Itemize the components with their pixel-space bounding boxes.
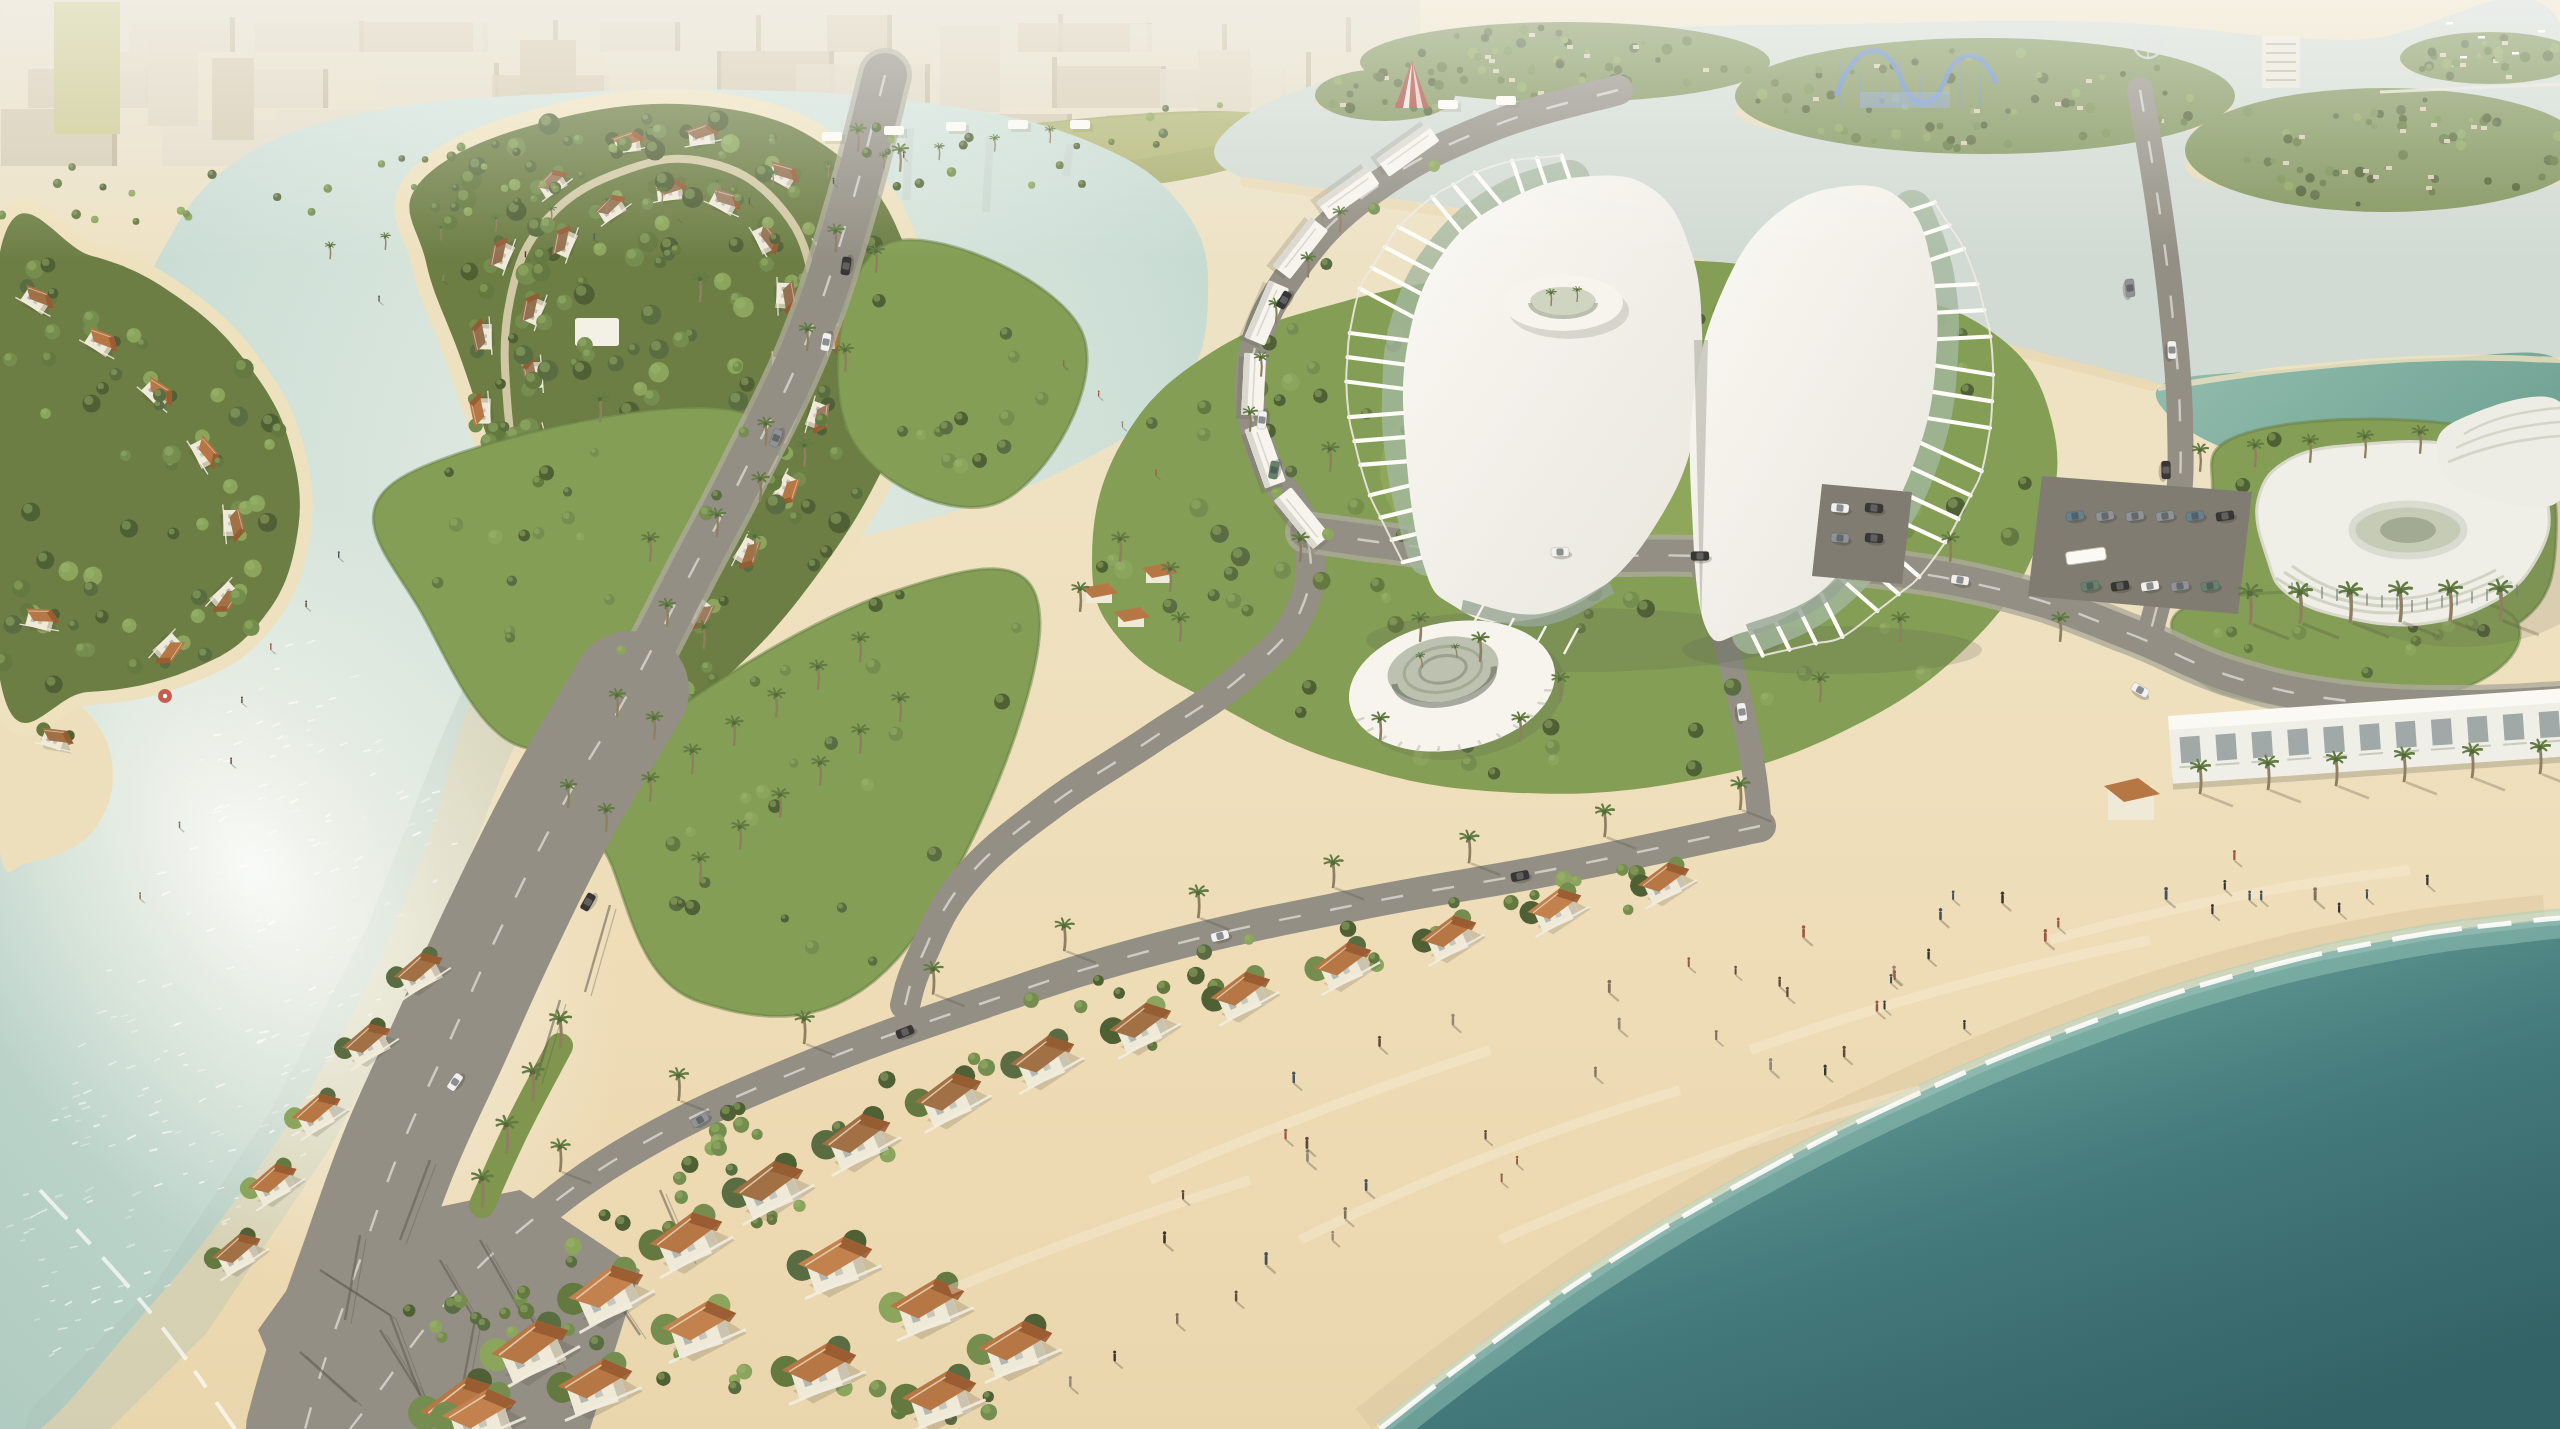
aerial-render	[0, 0, 2560, 1429]
aerial-render-canvas	[0, 0, 2560, 1429]
atmospheric-haze	[0, 0, 2560, 1429]
